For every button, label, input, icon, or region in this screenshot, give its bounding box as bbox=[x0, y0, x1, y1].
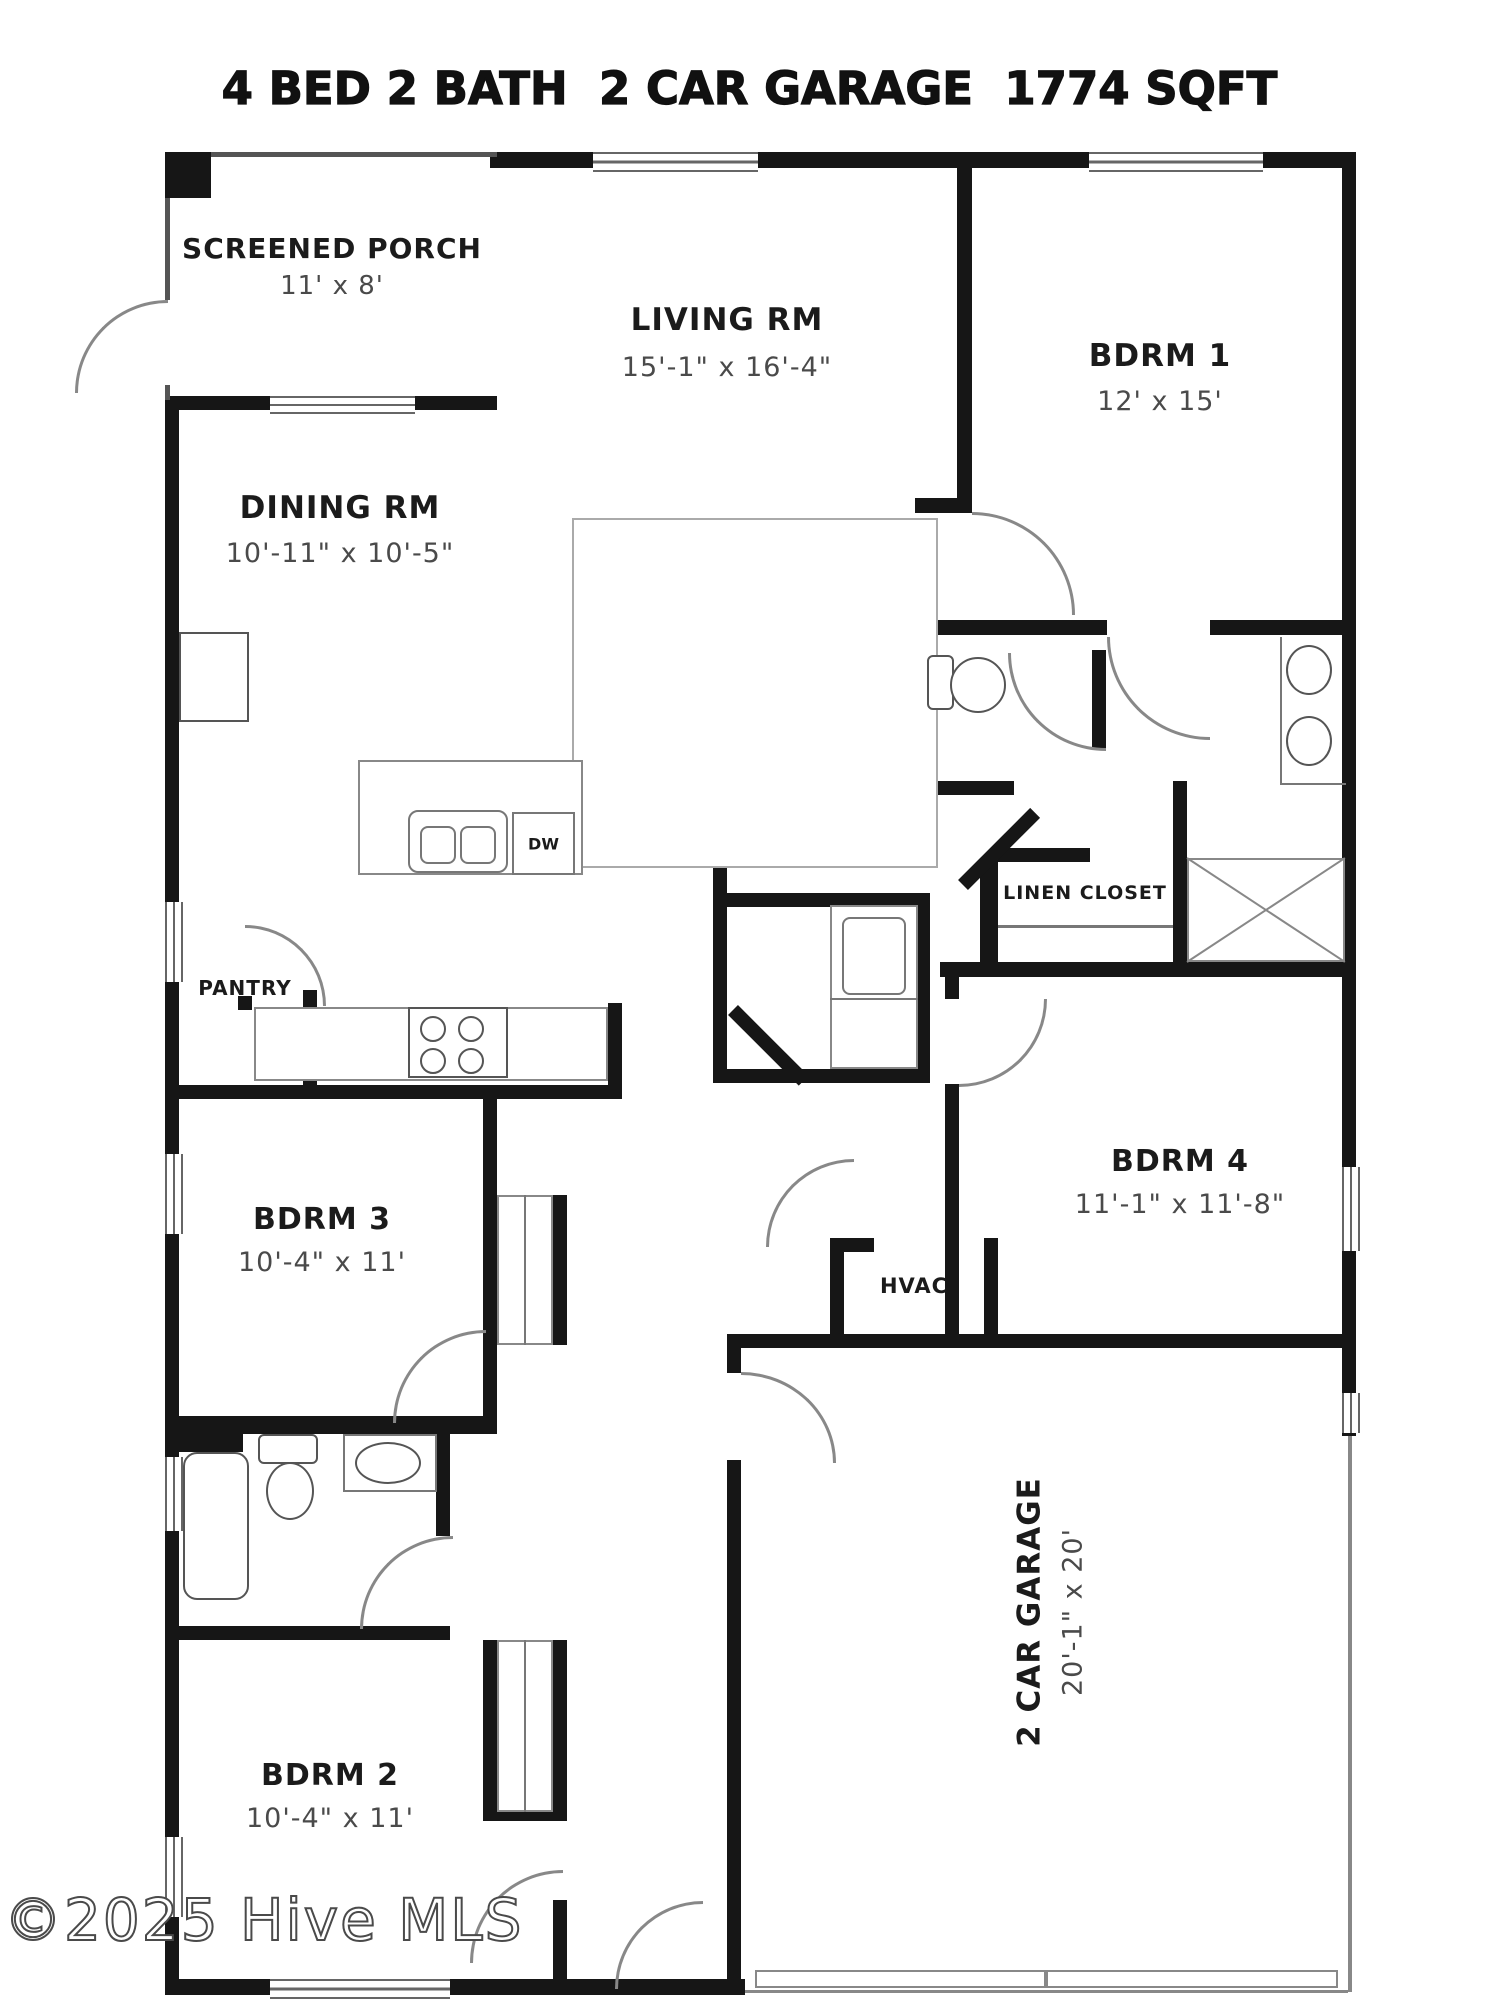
room-label-bdrm4: BDRM 4 11'-1" x 11'-8" bbox=[1075, 1144, 1285, 1220]
toiletroom-door-arc bbox=[1008, 653, 1106, 751]
room-name: LIVING RM bbox=[622, 302, 832, 338]
room-dims: 11'-1" x 11'-8" bbox=[1075, 1189, 1285, 1220]
bdrm2-closet-rod bbox=[524, 1640, 526, 1812]
wall-bdrm3-right-a bbox=[483, 1085, 497, 1195]
room-label-bdrm2: BDRM 2 10'-4" x 11' bbox=[246, 1758, 414, 1834]
room-name: BDRM 1 bbox=[1089, 338, 1231, 374]
room-name: BDRM 4 bbox=[1075, 1144, 1285, 1179]
wall-bdrm4-left-b bbox=[945, 1084, 959, 1345]
bdrm3-door-arc bbox=[393, 1330, 486, 1423]
window-bdrm2-bottom-1 bbox=[270, 1979, 362, 1999]
room-label-bdrm1: BDRM 1 12' x 15' bbox=[1089, 338, 1231, 417]
window-living-top bbox=[593, 152, 758, 172]
porch-corner-post bbox=[165, 152, 211, 198]
fridge bbox=[179, 632, 249, 722]
bdrm4-door-arc bbox=[959, 999, 1047, 1087]
bathtub bbox=[183, 1452, 249, 1600]
room-label-living: LIVING RM 15'-1" x 16'-4" bbox=[622, 302, 832, 383]
wall-bdrm2-right-a bbox=[553, 1640, 567, 1821]
toilet2-tank bbox=[258, 1434, 318, 1464]
wall-bath2-right bbox=[436, 1420, 450, 1536]
wall-laundry-right bbox=[916, 907, 930, 1083]
wall-bdrm4-left-a bbox=[945, 977, 959, 999]
vanity1-sink-2 bbox=[1286, 716, 1332, 766]
bdrm1-door-arc bbox=[972, 512, 1075, 615]
stove-burner bbox=[458, 1048, 484, 1074]
wall-vestibule-right bbox=[1173, 781, 1187, 977]
toilet1-bowl bbox=[950, 657, 1006, 713]
room-dims: 10'-4" x 11' bbox=[238, 1247, 406, 1278]
room-dims: 10'-4" x 11' bbox=[246, 1803, 414, 1834]
garage-door-panel-1 bbox=[755, 1970, 1046, 1988]
wall-hvac-right bbox=[984, 1238, 998, 1348]
sink-basin-left bbox=[420, 826, 456, 864]
room-label-pantry: PANTRY bbox=[198, 976, 291, 1000]
garage-door-panel-2 bbox=[1046, 1970, 1338, 1988]
room-name: LINEN CLOSET bbox=[1003, 882, 1167, 904]
porch-wall-top bbox=[165, 152, 497, 157]
wall-linen-left bbox=[980, 860, 998, 977]
wall-garage-left-a bbox=[727, 1345, 741, 1373]
toilet2-bowl bbox=[266, 1462, 314, 1520]
window-bdrm3-left bbox=[165, 1154, 183, 1234]
wall-mbath-top-a bbox=[912, 620, 1107, 635]
wall-living-bdrm1 bbox=[957, 152, 972, 512]
window-dining-left bbox=[165, 902, 183, 982]
vanity1-sink-1 bbox=[1286, 645, 1332, 695]
plan-title: 4 BED 2 BATH 2 CAR GARAGE 1774 SQFT bbox=[0, 62, 1499, 115]
washer-door bbox=[842, 917, 906, 995]
floor-plan: 4 BED 2 BATH 2 CAR GARAGE 1774 SQFT bbox=[0, 0, 1499, 2000]
stove-burner bbox=[420, 1016, 446, 1042]
porch-door-arc bbox=[75, 300, 168, 393]
window-bdrm4-right bbox=[1342, 1167, 1360, 1251]
wall-laundry-bottom bbox=[727, 1069, 930, 1083]
room-dims: 15'-1" x 16'-4" bbox=[622, 352, 832, 383]
wall-garage-top bbox=[727, 1334, 1356, 1348]
porch-slider-window bbox=[270, 396, 415, 414]
room-name: BDRM 2 bbox=[246, 1758, 414, 1793]
room-label-garage: 2 CAR GARAGE 20'-1" x 20' bbox=[1012, 1477, 1089, 1747]
room-label-hvac: HVAC bbox=[880, 1274, 948, 1298]
room-name: BDRM 3 bbox=[238, 1202, 406, 1237]
linen-shelf-line bbox=[998, 925, 1173, 928]
wall-bdrm4-top bbox=[940, 962, 1356, 977]
dishwasher-label: DW bbox=[528, 834, 559, 853]
window-bdrm2-bottom-2 bbox=[362, 1979, 450, 1999]
mbath-door-arc bbox=[1107, 637, 1210, 740]
room-label-screened-porch: SCREENED PORCH 11' x 8' bbox=[182, 232, 482, 301]
wall-closet3-left bbox=[483, 1195, 497, 1345]
vanity1-edge bbox=[1280, 637, 1282, 785]
hvac-door-arc bbox=[766, 1159, 854, 1247]
room-name: SCREENED PORCH bbox=[182, 232, 482, 265]
vanity1-bottom bbox=[1280, 783, 1346, 785]
living-area-outline bbox=[572, 518, 938, 868]
window-bdrm1-top bbox=[1089, 152, 1263, 172]
stove-burner bbox=[458, 1016, 484, 1042]
room-name: 2 CAR GARAGE bbox=[1012, 1477, 1048, 1747]
room-name: DINING RM bbox=[226, 490, 455, 526]
garage-entry-door-arc bbox=[741, 1372, 836, 1463]
front-door-arc bbox=[615, 1901, 703, 1989]
mls-watermark: ©2025 Hive MLS bbox=[4, 1886, 523, 1954]
window-bath2-left bbox=[165, 1457, 183, 1531]
jamb-bdrm1-door bbox=[915, 498, 972, 513]
bdrm3-closet-rod bbox=[524, 1195, 526, 1345]
washer-divider bbox=[830, 998, 918, 1000]
room-label-bdrm3: BDRM 3 10'-4" x 11' bbox=[238, 1202, 406, 1278]
room-name: HVAC bbox=[880, 1274, 948, 1298]
wall-bath2-top-extra bbox=[165, 1434, 243, 1452]
wall-garage-left-b bbox=[727, 1460, 741, 1995]
room-dims: 11' x 8' bbox=[182, 271, 482, 301]
room-dims: 10'-11" x 10'-5" bbox=[226, 538, 455, 569]
garage-right-edge bbox=[1348, 1436, 1352, 1992]
stove-burner bbox=[420, 1048, 446, 1074]
dishwasher-box: DW bbox=[512, 812, 575, 875]
wall-mbath-top-b bbox=[1210, 620, 1356, 635]
room-name: PANTRY bbox=[198, 976, 291, 1000]
wall-closet3-right bbox=[553, 1195, 567, 1345]
window-right-lower bbox=[1342, 1393, 1360, 1433]
room-dims: 12' x 15' bbox=[1089, 386, 1231, 417]
wall-hvac-left bbox=[830, 1238, 844, 1348]
sink-basin-right bbox=[460, 826, 496, 864]
bath2-door-arc bbox=[360, 1536, 453, 1629]
wall-linen-top bbox=[998, 848, 1090, 862]
vanity2-sink bbox=[355, 1442, 421, 1484]
wall-closet2-left bbox=[483, 1640, 497, 1812]
room-dims: 20'-1" x 20' bbox=[1058, 1477, 1089, 1747]
room-label-dining: DINING RM 10'-11" x 10'-5" bbox=[226, 490, 455, 569]
wall-kitchen-bdrm3 bbox=[165, 1085, 622, 1099]
garage-bottom-edge bbox=[745, 1990, 1348, 1993]
room-label-linen: LINEN CLOSET bbox=[1003, 882, 1167, 904]
